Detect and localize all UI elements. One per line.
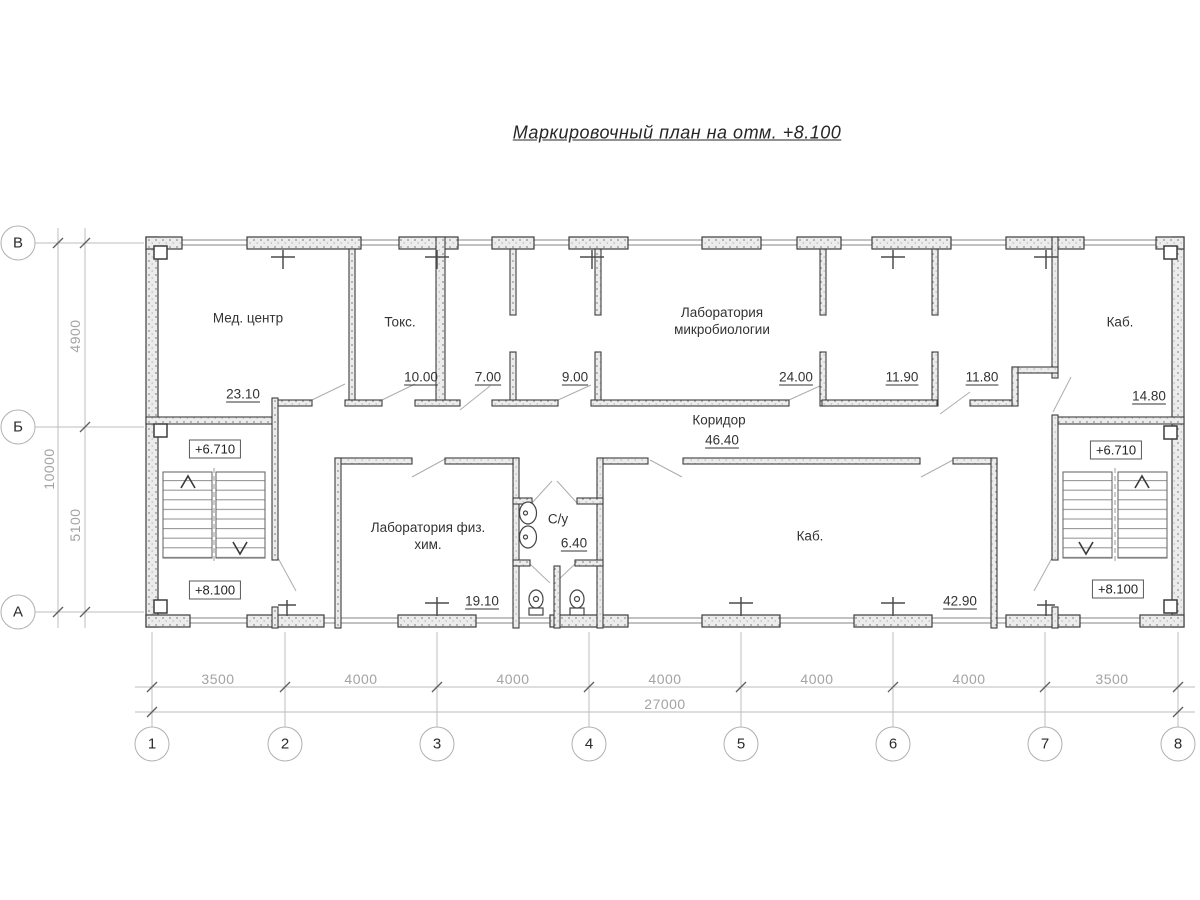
room-label-su: С/у bbox=[548, 512, 568, 527]
dim-span-1-2: 3500 bbox=[201, 671, 234, 687]
dim-span-5-6: 4000 bbox=[800, 671, 833, 687]
axis-circle-1: 1 bbox=[135, 727, 170, 762]
room-label-lab-chem: Лаборатория физ. хим. bbox=[368, 520, 488, 554]
room-area-r7: 7.00 bbox=[475, 370, 501, 385]
column-squares bbox=[154, 246, 1177, 613]
elevation-mark-upper-left: +6.710 bbox=[189, 440, 241, 459]
dim-span-3-4: 4000 bbox=[496, 671, 529, 687]
drawing-title: Маркировочный план на отм. +8.100 bbox=[513, 123, 842, 144]
room-area-r1190: 11.90 bbox=[886, 370, 919, 385]
axis-circle-a: А bbox=[1, 595, 36, 630]
dim-span-v-b: 4900 bbox=[67, 319, 83, 352]
room-area-r9: 9.00 bbox=[562, 370, 588, 385]
dimension-lines bbox=[58, 228, 1195, 712]
room-label-lab-micro: Лаборатория микробиологии bbox=[654, 305, 790, 339]
dim-span-2-3: 4000 bbox=[344, 671, 377, 687]
room-area-lab-micro: 24.00 bbox=[779, 370, 813, 385]
room-label-corridor: Коридор bbox=[692, 413, 745, 428]
room-label-toks: Токс. bbox=[384, 315, 415, 330]
dim-span-b-a: 5100 bbox=[67, 508, 83, 541]
door-swings bbox=[278, 377, 1071, 591]
room-area-r1180: 11.80 bbox=[966, 370, 999, 385]
dim-total-height: 10000 bbox=[41, 448, 57, 489]
stair-left bbox=[163, 468, 265, 562]
floor-plan-drawing: Маркировочный план на отм. +8.100 Мед. ц… bbox=[0, 0, 1200, 900]
elevation-mark-lower-left: +8.100 bbox=[189, 581, 241, 600]
room-label-kab-top: Каб. bbox=[1107, 315, 1134, 330]
axis-circle-2: 2 bbox=[268, 727, 303, 762]
room-area-corridor: 46.40 bbox=[705, 433, 739, 448]
interior-walls bbox=[146, 237, 1184, 628]
room-area-su: 6.40 bbox=[561, 536, 587, 551]
axis-circle-8: 8 bbox=[1161, 727, 1196, 762]
axis-circle-4: 4 bbox=[572, 727, 607, 762]
axis-circle-3: 3 bbox=[420, 727, 455, 762]
axis-circle-v: В bbox=[1, 226, 36, 261]
window-openings bbox=[182, 240, 1156, 623]
elevation-mark-upper-right: +6.710 bbox=[1090, 441, 1142, 460]
dim-span-6-7: 4000 bbox=[952, 671, 985, 687]
sink-icons bbox=[520, 502, 537, 548]
dim-span-4-5: 4000 bbox=[648, 671, 681, 687]
room-area-toks: 10.00 bbox=[404, 370, 438, 385]
stair-right bbox=[1063, 468, 1167, 562]
axis-circle-5: 5 bbox=[724, 727, 759, 762]
elevation-mark-lower-right: +8.100 bbox=[1092, 580, 1144, 599]
axis-circle-6: 6 bbox=[876, 727, 911, 762]
dim-span-7-8: 3500 bbox=[1095, 671, 1128, 687]
room-label-kab-bottom: Каб. bbox=[797, 529, 824, 544]
room-label-med-center: Мед. центр bbox=[213, 311, 283, 326]
room-area-kab-top: 14.80 bbox=[1132, 389, 1166, 404]
room-area-kab-bottom: 42.90 bbox=[943, 594, 977, 609]
room-area-lab-chem: 19.10 bbox=[465, 594, 499, 609]
exterior-walls bbox=[146, 237, 1184, 627]
dim-total-width: 27000 bbox=[644, 696, 685, 712]
axis-circle-b: Б bbox=[1, 410, 36, 445]
axis-circle-7: 7 bbox=[1028, 727, 1063, 762]
room-area-med-center: 23.10 bbox=[226, 387, 260, 402]
